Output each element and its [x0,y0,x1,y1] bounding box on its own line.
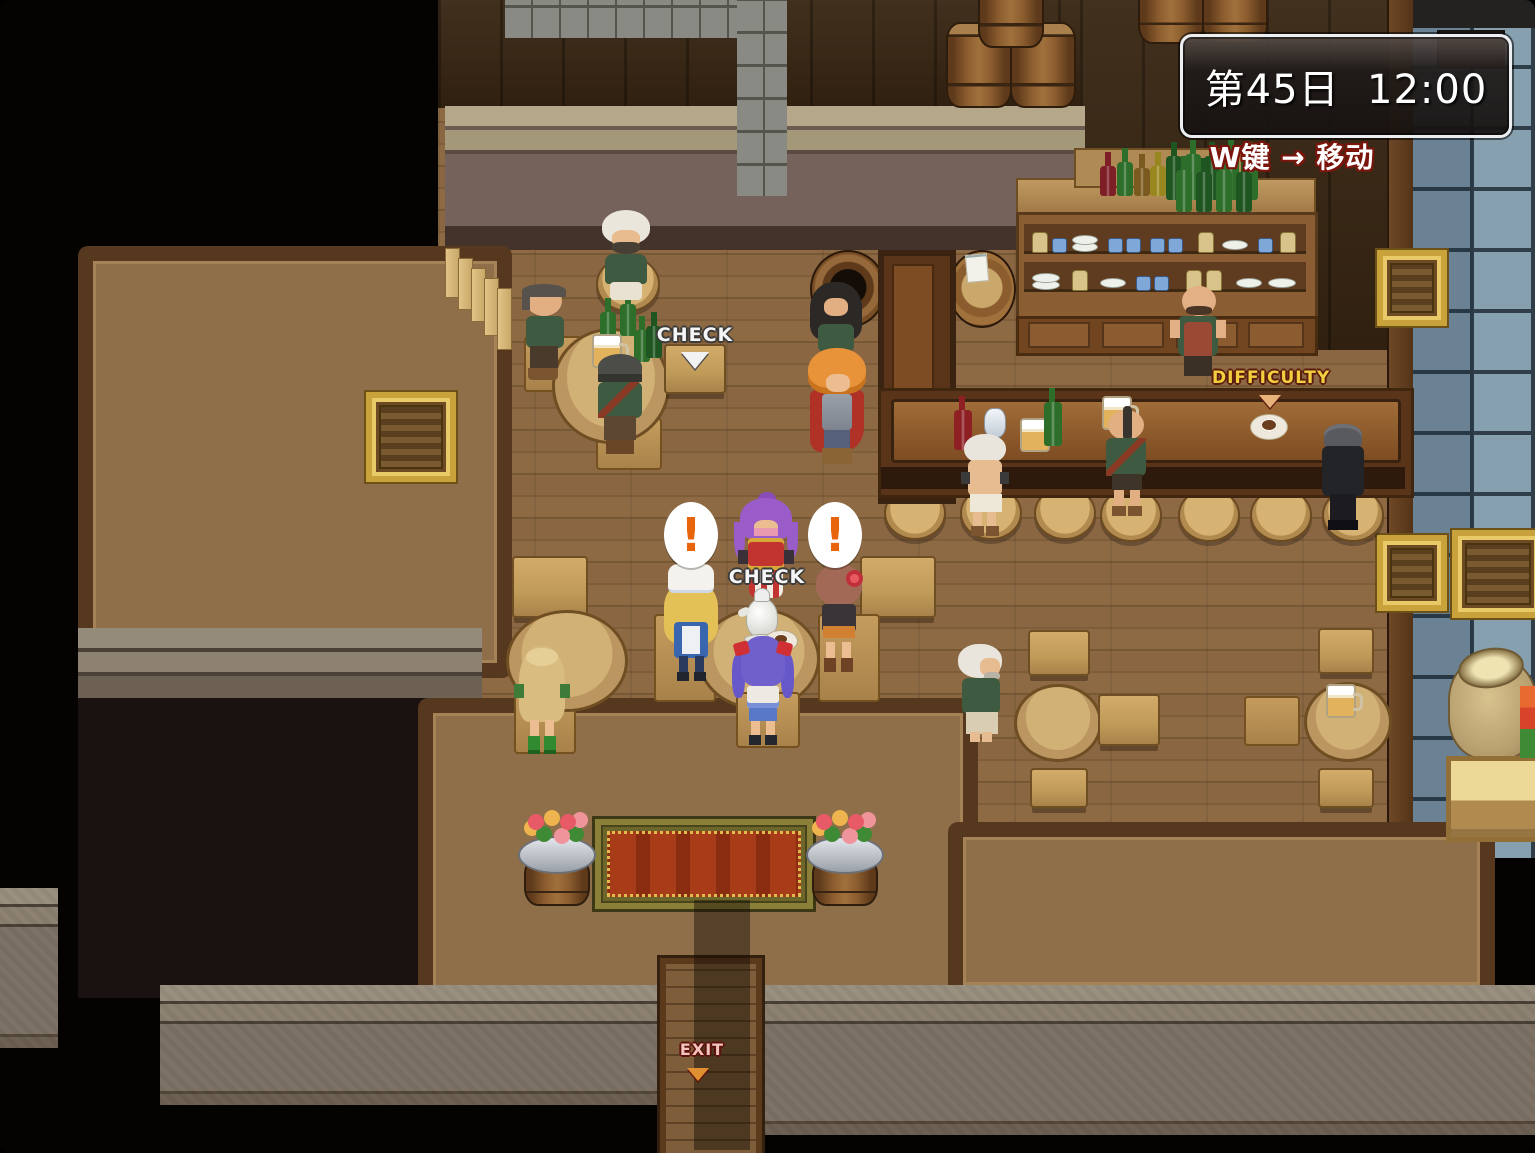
ornate-rug [592,816,816,912]
exclamation-icon: ! [664,502,718,568]
gold-window-left [366,392,456,482]
npc-girl-rose-hair[interactable] [810,564,868,680]
grain-crate [1446,756,1535,842]
coffee-cup [1250,414,1288,440]
npc-waitress-blonde-cap[interactable] [662,564,720,684]
stone-tiles-top [505,0,740,38]
npc-capped-man[interactable] [590,354,650,462]
exit-arrow-icon[interactable] [687,1068,709,1081]
door-shadow [694,900,750,1150]
exit-label[interactable]: EXIT [668,1040,736,1059]
check-arrow-icon[interactable] [681,352,709,369]
npc-old-man-sitting-top[interactable] [596,210,656,310]
check-label-teapot[interactable]: CHECK [722,566,812,588]
stone-wall-fragment [0,888,58,1048]
npc-bar-patron-shirtless[interactable] [956,434,1014,538]
flower-planter-right [806,808,880,904]
left-terrace-ledge [78,628,482,702]
small-table [512,556,588,618]
paper-note [965,253,989,283]
right-terrace-strip [948,822,1495,1000]
wine-bottle [1100,152,1116,196]
tiles-corner-dark [1413,0,1535,30]
day-time-window: 第45日 12:00 [1180,34,1512,138]
npc-bar-patron-mohawk[interactable] [1096,408,1156,520]
npc-girl-blue-twintails[interactable] [732,636,794,754]
game-screen: ! ! CHECK CHECK DIFFICULTY EXIT 第45日 12:… [0,0,1535,1153]
difficulty-arrow-icon[interactable] [1259,395,1281,408]
npc-hero-orange-hair[interactable] [804,348,870,466]
day-time-text: 第45日 12:00 [1183,37,1509,135]
check-label-table[interactable]: CHECK [650,324,740,346]
npc-bar-patron-suit[interactable] [1314,424,1372,534]
npc-girl-long-blonde[interactable] [514,646,570,756]
gold-window-right1 [1377,250,1447,326]
npc-old-man-standing[interactable] [952,644,1008,754]
difficulty-label[interactable]: DIFFICULTY [1212,368,1328,388]
stone-wall-left [160,985,662,1105]
counter-bottle-green [1044,388,1062,446]
move-hint: W键 → 移动 [1186,136,1398,176]
flower-edge [1520,686,1535,758]
flower-planter-left [518,808,592,904]
gold-window-right2 [1377,535,1447,611]
alert-bubble-left[interactable]: ! [664,502,718,568]
stone-wall-right [748,985,1535,1135]
npc-balding-man[interactable] [516,284,572,388]
exclamation-icon: ! [808,502,862,568]
alert-bubble-right[interactable]: ! [808,502,862,568]
gold-window-far-right [1452,530,1535,618]
stone-pillar [737,0,787,196]
